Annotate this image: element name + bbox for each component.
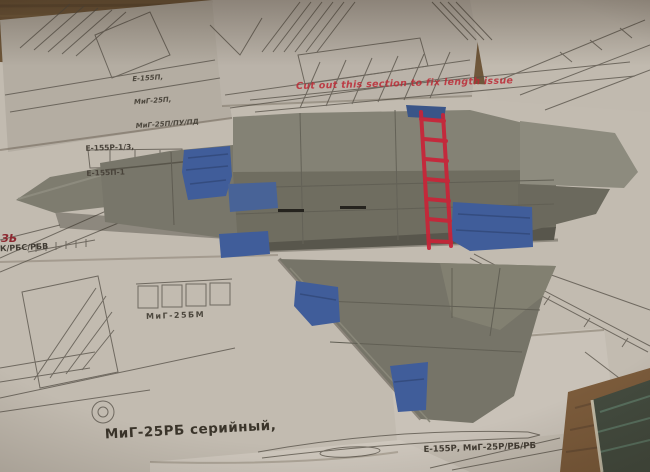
label-line: Е-155Р, МиГ-25Р/РБ/РБ (423, 442, 536, 455)
paper-sheet-top-right (470, 0, 650, 112)
model-panel-slot-right (340, 206, 366, 209)
masking-tape-forward-mid (228, 182, 278, 212)
model-panel-slot-left (278, 209, 304, 212)
label-line: 1974 г. (107, 464, 279, 472)
photo-scene (0, 0, 650, 472)
label-e155r: Е-155Р-1/3, Е-155П-1 (85, 126, 136, 195)
model-main-fuselage-upper (233, 110, 556, 173)
label-line: МиГ-25РБ серийный, (105, 419, 277, 443)
photo-model-aircraft: Cut out this section to fix length issue… (0, 0, 650, 472)
label-line: Е-155П-1 (86, 168, 135, 178)
label-variant-top: Е-155П, МиГ-25П, МиГ-25П/ПУ/ПД (131, 56, 200, 146)
label-line: МиГ-25П/ПУ/ПД (135, 118, 199, 130)
masking-tape-ladder-top (406, 105, 446, 119)
label-line: Е-155Р-1/3, (85, 143, 134, 153)
label-line: МиГ-25П, (134, 95, 198, 107)
label-line: Е-155П, (132, 72, 196, 84)
label-bottom-right: Е-155Р, МиГ-25Р/РБ/РБ (до 1977 г.) (423, 423, 538, 472)
label-serial: МиГ-25РБ серийный, 1974 г. (103, 389, 281, 472)
masking-tape-forward-lower (219, 231, 270, 258)
masking-tape-rear (451, 202, 533, 251)
